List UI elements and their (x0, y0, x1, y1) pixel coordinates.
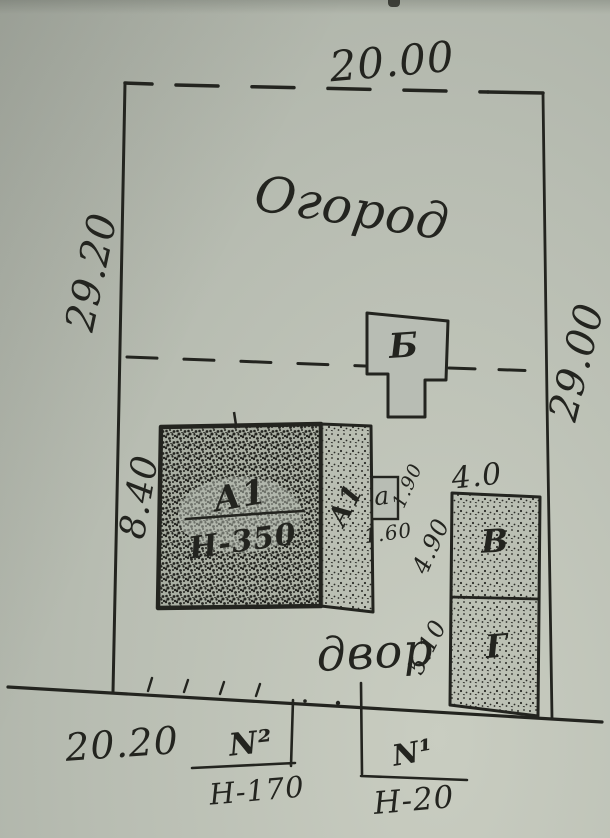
boundary-top-corner-left (125, 83, 152, 84)
dim-porch-1-60: 1.60 (363, 520, 414, 547)
porch-label: а (373, 483, 391, 510)
shed-g-label: Г (484, 629, 510, 663)
sheds-vg-divider (450, 597, 539, 599)
dim-frontage-20-20: 20.20 (64, 721, 180, 767)
gate-n1-height: Н-20 (372, 782, 455, 820)
gate-n1-label: N¹ (390, 735, 436, 771)
gate-n2-height: Н-170 (208, 772, 306, 809)
building-b-label: Б (388, 328, 420, 364)
boundary-left (113, 83, 125, 692)
building-main-label: А1 (211, 475, 269, 518)
boundary-top-corner-right (488, 92, 543, 93)
scanned-site-plan: 20.00 Огород 29.20 29.00 8.40 Б А1 Н-350… (0, 0, 610, 838)
shed-v-label: В (480, 524, 510, 557)
plan-geometry (0, 0, 610, 838)
frontage-ticks (148, 678, 260, 696)
scan-edge-mark (388, 0, 400, 7)
frontage-dot (336, 701, 340, 705)
gate-n2-label: N² (228, 726, 275, 761)
building-main-chimney-tick (234, 412, 236, 425)
dim-shed-v-4-0: 4.0 (450, 459, 504, 494)
garden-dashed-line (127, 357, 365, 366)
frontage-dot (303, 699, 307, 703)
yard-label: двор (315, 626, 434, 678)
dim-top-20-00: 20.00 (328, 36, 456, 89)
garden-dashed-line-right (449, 368, 541, 371)
